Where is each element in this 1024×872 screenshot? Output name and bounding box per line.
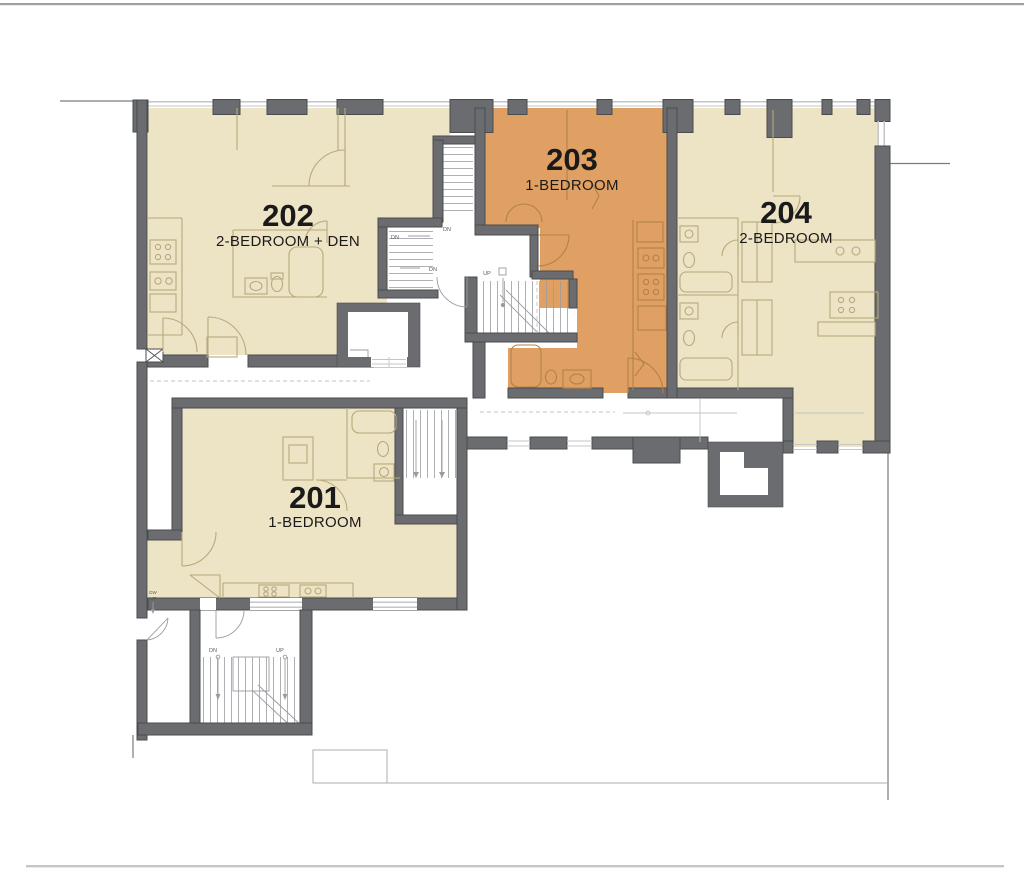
stair-up-label: UP: [276, 648, 284, 654]
unit-201-type: 1-BEDROOM: [268, 514, 362, 531]
unit-202-number: 202: [262, 198, 314, 233]
unit-204-number: 204: [760, 195, 812, 230]
unit-201-number: 201: [289, 480, 341, 515]
unit-204-type: 2-BEDROOM: [739, 230, 833, 247]
void-stair: [403, 410, 457, 478]
utility-box: [146, 349, 163, 362]
chimney-shaft: [708, 442, 783, 507]
floor-plan: DN DN DN UP DN UP DW UF 202 2-BEDROOM + …: [0, 0, 1024, 872]
unit-203-type: 1-BEDROOM: [525, 177, 619, 194]
unit-203-number: 203: [546, 142, 598, 177]
stair-up-label: UP: [483, 271, 491, 277]
stair-dn-label: DN: [209, 648, 217, 654]
appliance-note-bottom: UF: [150, 596, 156, 601]
floor-plan-page: DN DN DN UP DN UP DW UF 202 2-BEDROOM + …: [0, 0, 1024, 872]
core-straight-stair: [443, 144, 473, 216]
stair-dn-label: DN: [391, 235, 399, 241]
appliance-note-top: DW: [149, 590, 157, 595]
elevator: [337, 303, 420, 367]
unit-202-type: 2-BEDROOM + DEN: [216, 233, 360, 250]
stair-dn-label: DN: [443, 227, 451, 233]
stair-dn-label: DN: [429, 267, 437, 273]
